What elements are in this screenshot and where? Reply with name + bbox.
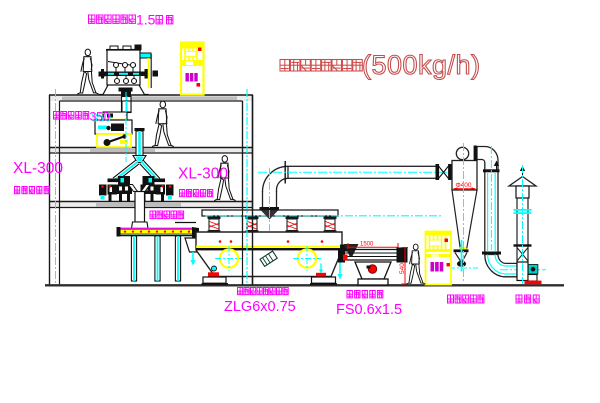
svg-text:1.5: 1.5 xyxy=(136,12,156,28)
svg-text:540: 540 xyxy=(399,263,406,274)
svg-text:1500: 1500 xyxy=(360,241,374,247)
svg-text:XL-300: XL-300 xyxy=(13,160,63,177)
svg-text:350: 350 xyxy=(90,110,110,124)
svg-text:FS0.6x1.5: FS0.6x1.5 xyxy=(336,302,402,318)
svg-text:XL-300: XL-300 xyxy=(178,166,228,183)
svg-text:ZLG6x0.75: ZLG6x0.75 xyxy=(224,299,296,315)
svg-text:(500kg/h): (500kg/h) xyxy=(362,50,481,80)
